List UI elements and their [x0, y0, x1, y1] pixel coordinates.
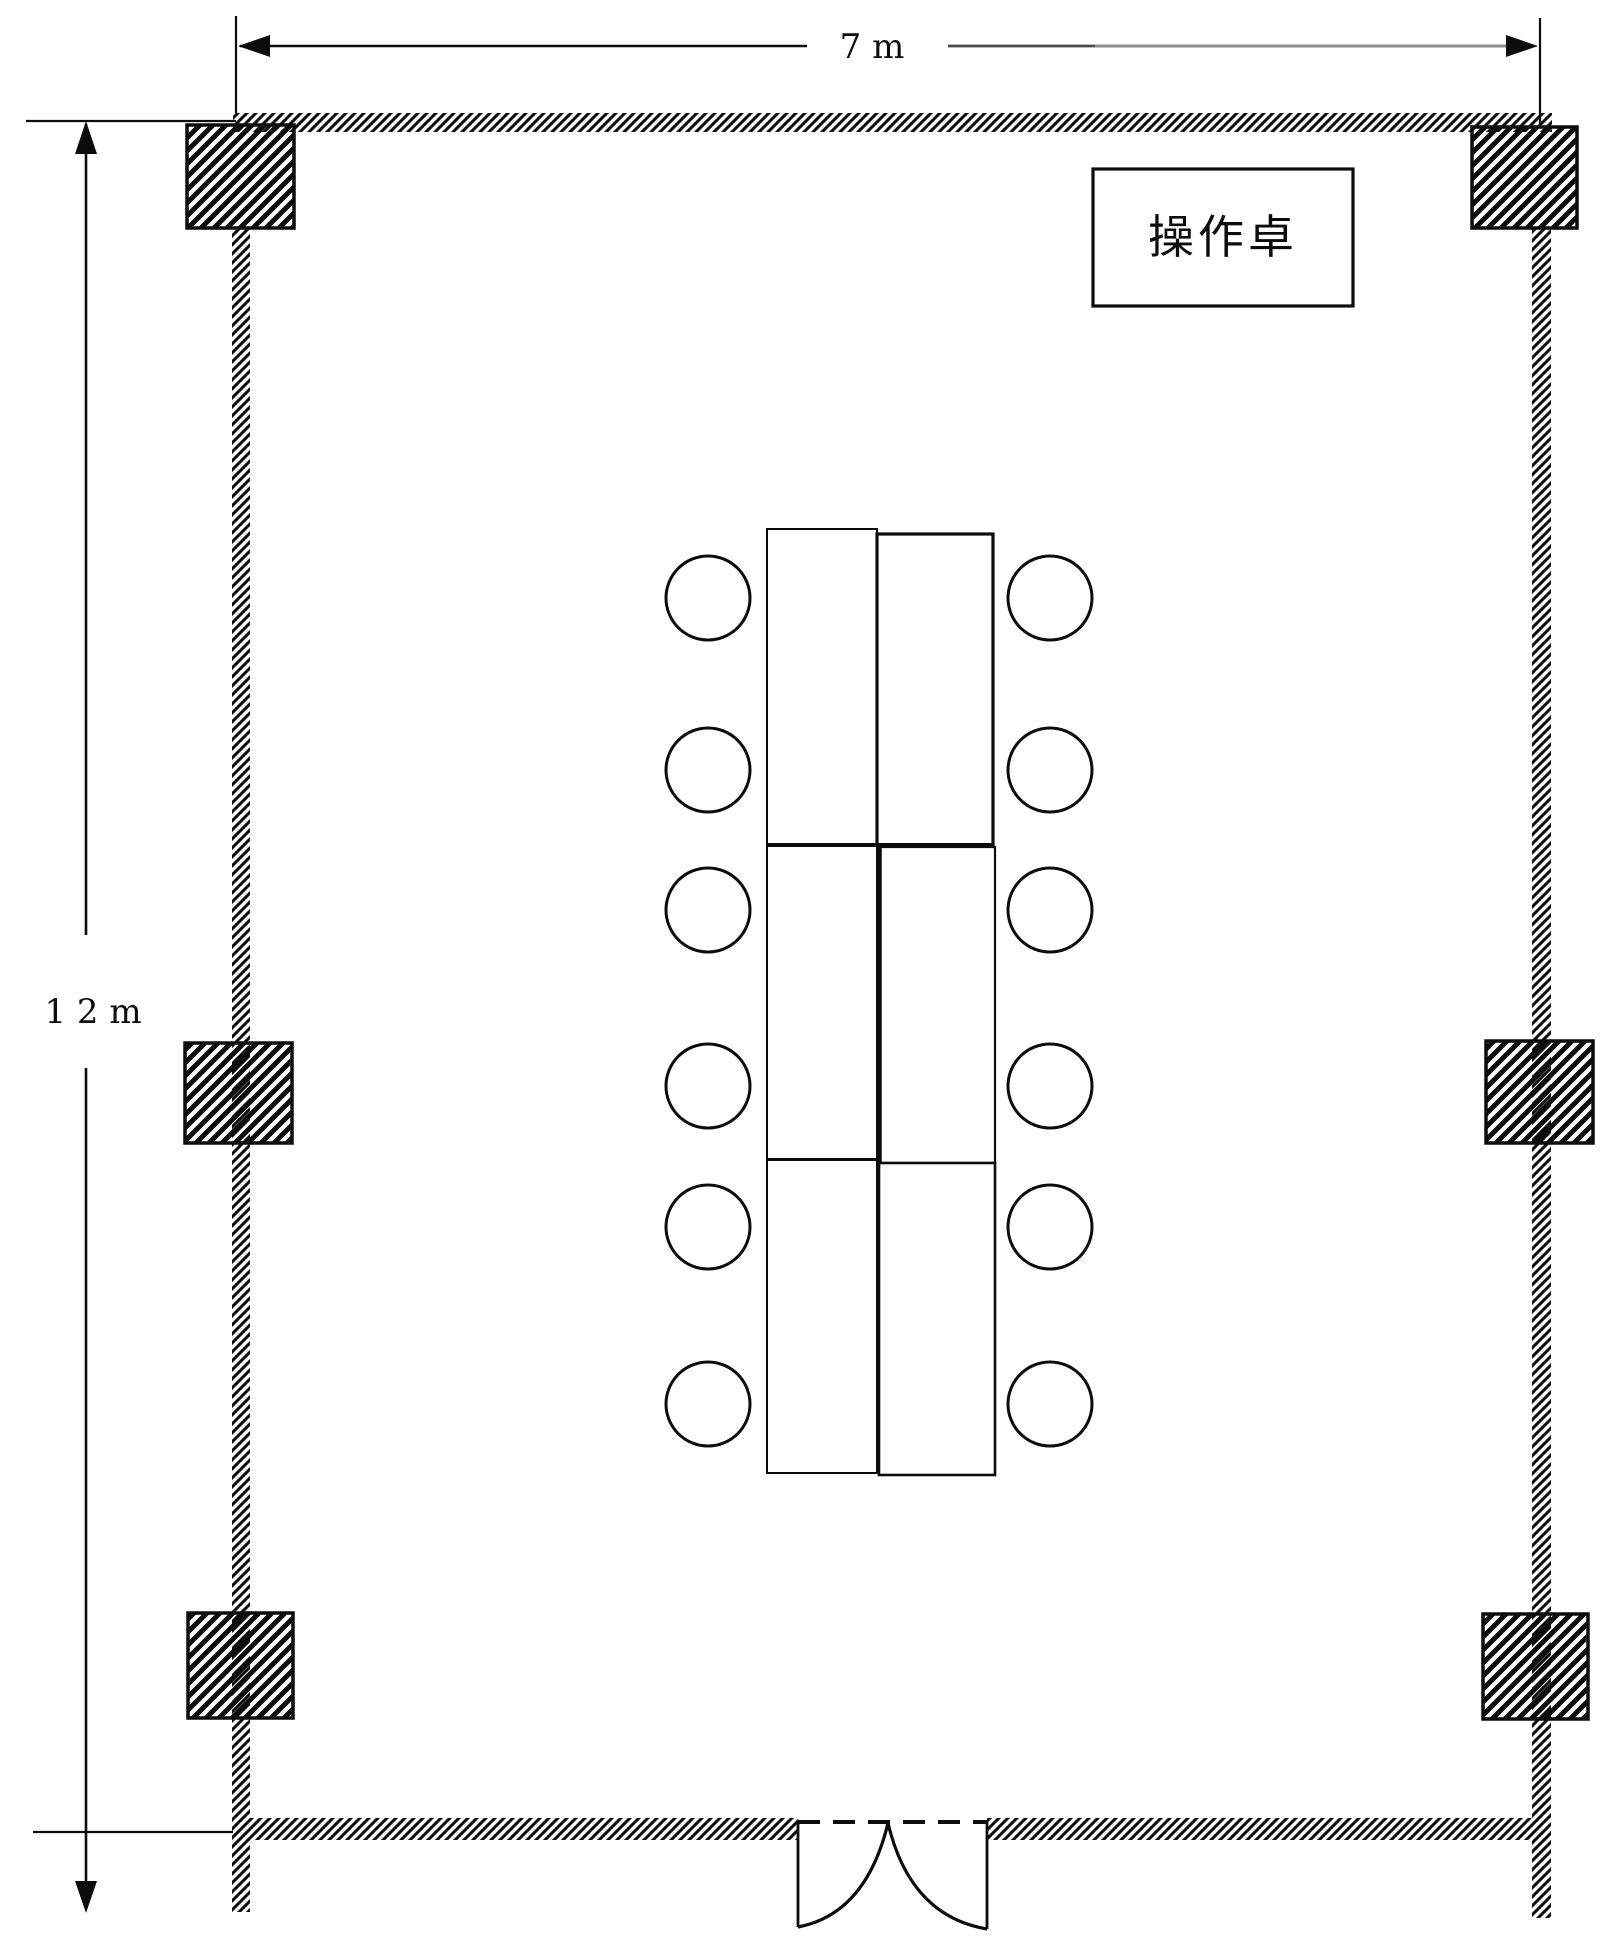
column-bottom-right	[1483, 1614, 1588, 1719]
chair-left-3	[666, 868, 750, 952]
column-top-right	[1472, 127, 1577, 228]
door-right-swing-arc	[888, 1823, 987, 1929]
width-dimension-label: 7 m	[840, 27, 905, 67]
top-wall	[233, 113, 1552, 132]
floor-plan: 7 m 1 2 m 操作卓	[0, 0, 1616, 1951]
chair-right-2	[1008, 728, 1092, 812]
arrowhead-right-icon	[1506, 35, 1538, 57]
column-mid-left	[185, 1043, 292, 1143]
chair-left-5	[666, 1185, 750, 1269]
height-dimension-label: 1 2 m	[44, 992, 141, 1032]
bottom-wall-right	[987, 1818, 1533, 1840]
door-left-swing-arc	[798, 1823, 888, 1927]
column-bottom-left	[188, 1613, 293, 1718]
chair-right-5	[1008, 1185, 1092, 1269]
width-dimension: 7 m	[236, 16, 1540, 127]
table-section-bottom-right	[879, 1163, 995, 1475]
table-section-mid-right	[879, 847, 995, 1163]
chair-right-3	[1008, 868, 1092, 952]
chair-left-2	[666, 728, 750, 812]
table-section-top-left	[767, 529, 877, 845]
arrowhead-down-icon	[75, 1881, 97, 1913]
console-desk-label: 操作卓	[1148, 210, 1298, 264]
arrowhead-left-icon	[238, 35, 270, 57]
table-section-bottom-left	[767, 1160, 877, 1473]
table-section-mid-left	[767, 845, 877, 1159]
entrance-door	[798, 1822, 987, 1929]
chair-right-1	[1008, 556, 1092, 640]
console-desk: 操作卓	[1093, 169, 1353, 306]
column-top-left	[187, 125, 294, 228]
chair-right-6	[1008, 1362, 1092, 1446]
conference-table	[767, 529, 995, 1475]
chair-right-4	[1008, 1044, 1092, 1128]
bottom-wall-left	[250, 1818, 798, 1840]
chair-left-4	[666, 1044, 750, 1128]
column-mid-right	[1486, 1041, 1593, 1143]
arrowhead-up-icon	[75, 121, 97, 154]
table-section-top-right	[877, 534, 993, 845]
chair-left-6	[666, 1362, 750, 1446]
chair-left-1	[666, 556, 750, 640]
